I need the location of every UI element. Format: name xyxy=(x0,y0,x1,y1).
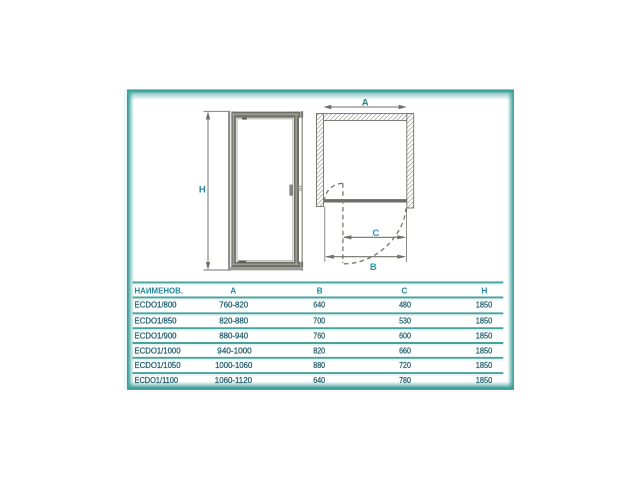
svg-text:760: 760 xyxy=(313,331,325,340)
svg-text:H: H xyxy=(199,185,206,196)
svg-text:1850: 1850 xyxy=(476,317,493,326)
svg-text:480: 480 xyxy=(399,301,411,310)
svg-text:1000-1060: 1000-1060 xyxy=(215,361,253,370)
svg-text:1850: 1850 xyxy=(476,301,493,310)
svg-text:C: C xyxy=(401,285,407,295)
svg-text:ECDO1/850: ECDO1/850 xyxy=(135,317,178,326)
svg-text:940-1000: 940-1000 xyxy=(217,347,252,356)
svg-text:880: 880 xyxy=(313,361,325,370)
svg-text:ECDO1/900: ECDO1/900 xyxy=(135,331,178,340)
svg-text:C: C xyxy=(372,228,379,239)
svg-text:1850: 1850 xyxy=(476,376,493,385)
svg-text:A: A xyxy=(362,97,369,108)
svg-text:530: 530 xyxy=(399,317,411,326)
svg-text:A: A xyxy=(230,285,236,295)
svg-text:1850: 1850 xyxy=(476,347,493,356)
svg-text:700: 700 xyxy=(313,317,325,326)
svg-text:ECDO1/1100: ECDO1/1100 xyxy=(135,376,179,385)
svg-text:ECDO1/800: ECDO1/800 xyxy=(135,301,178,310)
svg-text:660: 660 xyxy=(399,347,411,356)
svg-text:B: B xyxy=(370,262,377,273)
svg-text:720: 720 xyxy=(399,361,411,370)
svg-text:820-880: 820-880 xyxy=(219,317,249,326)
svg-text:1850: 1850 xyxy=(476,361,493,370)
svg-text:ECDO1/1050: ECDO1/1050 xyxy=(135,361,182,370)
svg-text:B: B xyxy=(317,285,323,295)
svg-text:1850: 1850 xyxy=(476,331,493,340)
svg-text:880-940: 880-940 xyxy=(219,331,249,340)
svg-text:ECDO1/1000: ECDO1/1000 xyxy=(135,347,182,356)
svg-text:820: 820 xyxy=(313,347,325,356)
svg-text:640: 640 xyxy=(313,376,325,385)
svg-text:1060-1120: 1060-1120 xyxy=(215,376,253,385)
svg-text:640: 640 xyxy=(313,301,325,310)
svg-text:H: H xyxy=(481,285,487,295)
svg-text:780: 780 xyxy=(399,376,411,385)
svg-text:760-820: 760-820 xyxy=(219,301,249,310)
svg-text:600: 600 xyxy=(399,331,411,340)
svg-text:НАИМЕНОВ.: НАИМЕНОВ. xyxy=(135,285,184,295)
